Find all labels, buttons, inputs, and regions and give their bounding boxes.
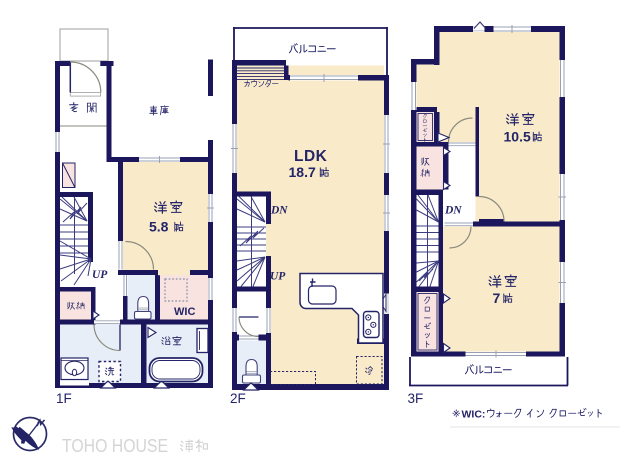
svg-text:7: 7 xyxy=(493,290,501,306)
svg-text:DN: DN xyxy=(444,205,462,217)
svg-text:1F: 1F xyxy=(56,391,72,406)
svg-text:LDK: LDK xyxy=(294,148,328,165)
svg-text:UP: UP xyxy=(92,269,108,281)
svg-text:3F: 3F xyxy=(408,391,424,406)
svg-text:WIC: WIC xyxy=(174,306,195,318)
svg-text:10.5: 10.5 xyxy=(504,129,531,145)
svg-text:TOHO HOUSE: TOHO HOUSE xyxy=(62,436,168,456)
svg-text:UP: UP xyxy=(270,271,286,283)
svg-text:2F: 2F xyxy=(230,391,246,406)
svg-text:WIC:: WIC: xyxy=(462,409,486,421)
svg-text:18.7: 18.7 xyxy=(289,164,316,180)
svg-text:5.8: 5.8 xyxy=(149,219,169,235)
svg-text:DN: DN xyxy=(270,205,288,217)
